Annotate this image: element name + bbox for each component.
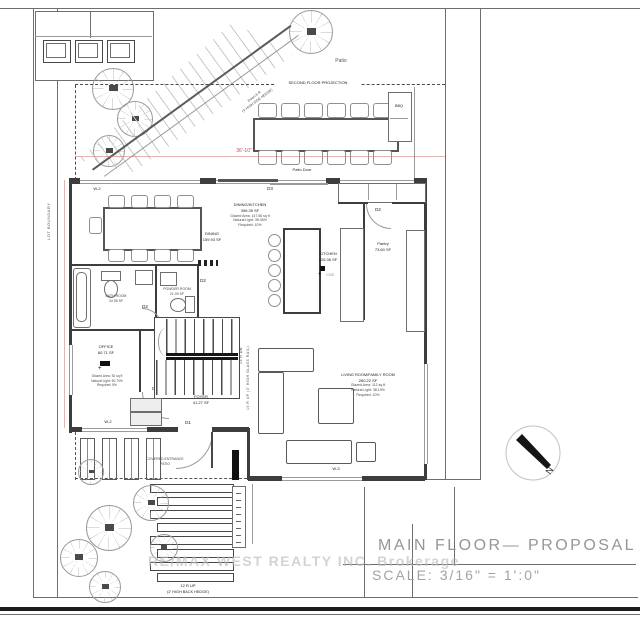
second-floor-projection-line	[75, 84, 445, 85]
wall-pier	[248, 476, 282, 481]
window-glazing	[424, 364, 425, 464]
dining-chair	[131, 195, 148, 208]
detector-icon: +	[98, 366, 102, 372]
stairs-upper-run	[166, 319, 238, 353]
toilet-tank	[185, 296, 195, 313]
sheet-scale: SCALE: 3/16" = 1':0"	[372, 567, 592, 583]
border-bottom-thick	[0, 607, 640, 611]
planter-box	[75, 40, 103, 63]
patio-dashed-left	[75, 432, 76, 480]
outdoor-chair	[350, 150, 369, 165]
dining-chair	[89, 217, 102, 234]
stairs-rail	[166, 357, 238, 360]
bbq-divider	[390, 118, 408, 119]
second-floor-projection-label: SECOND FLOOR PROJECTION	[276, 80, 360, 85]
patio-door-label: Patio Door	[282, 167, 322, 172]
strip-edge-line	[252, 484, 253, 544]
room-area: 73.60 SF	[368, 247, 398, 253]
border-bottom-thin	[0, 614, 640, 615]
pantry-shelving	[406, 230, 425, 332]
door-label-d2: D2	[138, 304, 152, 309]
window-glazing	[427, 364, 428, 464]
dining-chair	[108, 249, 125, 262]
outdoor-chair	[281, 103, 300, 118]
floor-plan-canvas: LOT BOUNDARY Down 6 R (3' HIGH SIDE HEDG…	[0, 0, 640, 620]
site-line-top	[0, 8, 640, 9]
room-required: Required: 10%	[334, 393, 402, 398]
entrance-column	[232, 450, 239, 480]
pantry-label: Pantry 73.60 SF	[368, 241, 398, 253]
site-line-right-1	[445, 8, 446, 480]
outdoor-chair	[304, 150, 323, 165]
wall-pier	[362, 476, 425, 481]
kitchen-counter-top	[338, 183, 426, 203]
window-glazing	[69, 345, 70, 395]
site-line-right-2	[480, 8, 481, 480]
room-area: 21.09 SF	[158, 292, 196, 297]
sofa-return	[258, 372, 284, 434]
tree	[289, 10, 333, 54]
lot-boundary-line	[57, 8, 58, 598]
bathtub	[73, 268, 91, 328]
second-floor-projection-line-left	[75, 85, 76, 180]
planting-strip	[232, 486, 246, 548]
outdoor-table	[253, 118, 399, 152]
outdoor-chair	[350, 103, 369, 118]
patio-label: Patio	[326, 58, 356, 64]
co-detector-icon: +	[318, 272, 322, 278]
room-area: 41.27 SF	[184, 400, 218, 406]
dining-kitchen-label: DINING/KITCHEN 396.39 SF Glazed Area: 14…	[220, 202, 280, 228]
dining-chair	[154, 249, 171, 262]
dining-chair	[177, 195, 194, 208]
foyer-label: FOYER 41.27 SF	[184, 394, 218, 406]
bbq-label: BBQ	[388, 104, 410, 108]
room-name-2: PATIO	[134, 462, 196, 467]
outdoor-chair	[304, 103, 323, 118]
window-glazing	[282, 477, 362, 478]
dimension-line-left	[64, 180, 65, 428]
site-line-left	[33, 8, 34, 598]
wall-bath-top	[70, 264, 198, 266]
island-stool	[268, 249, 281, 262]
living-label: LIVING ROOM/FAMILY ROOM 260.22 SF Glazed…	[334, 372, 402, 398]
garage-inner-line	[35, 36, 152, 37]
wall-pier	[147, 427, 178, 432]
window-label-w2: W-2	[88, 186, 106, 191]
wall-left	[69, 180, 72, 345]
covered-patio-label: COVERED ENTRANCE PATIO	[134, 457, 196, 467]
dining-chair	[177, 249, 194, 262]
watermark: RE/MAX WEST REALTY INC. Brokerage	[148, 553, 478, 569]
island-stool	[268, 264, 281, 277]
room-area: 226.36 SF	[312, 257, 344, 263]
bath-sink	[135, 270, 153, 285]
foyer-closet	[130, 412, 162, 426]
office-glazing-note: Glazed Area: 30 sq ft Natural Light: 50.…	[82, 374, 132, 388]
window-label-w2-lower: W-2	[98, 419, 118, 424]
window-label-w3: W-3	[326, 466, 346, 471]
door-label-d3: D3	[262, 186, 278, 191]
office-label: OFFICE 60.71 SF	[84, 344, 128, 356]
room-required: Required: 5%	[82, 383, 132, 388]
wall-pier	[212, 427, 249, 432]
dining-table	[103, 207, 202, 251]
exterior-step	[157, 523, 234, 532]
detector-icon	[320, 266, 325, 271]
kitchen-label: KITCHEN 226.36 SF	[312, 251, 344, 263]
window-glazing	[282, 480, 362, 481]
island-stool	[268, 234, 281, 247]
side-table	[356, 442, 376, 462]
door-label-d1: D1	[180, 420, 196, 425]
bench-sofa	[286, 440, 352, 464]
foyer-closet	[130, 398, 162, 412]
powder-label: POWDER ROOM 21.09 SF	[158, 287, 196, 297]
door-label-d2: D2	[196, 278, 210, 283]
door-label-d2: D2	[371, 207, 385, 212]
tree	[133, 485, 169, 521]
counter-divider	[396, 184, 397, 200]
patio-side-line	[414, 87, 415, 180]
counter-divider	[368, 184, 369, 200]
room-required: Required: 10%	[220, 223, 280, 228]
garage-divider	[90, 11, 91, 38]
tree	[60, 539, 98, 577]
room-area: 34.95 SF	[98, 299, 134, 304]
outdoor-chair	[327, 150, 346, 165]
outdoor-chair	[258, 103, 277, 118]
titleblock-line	[364, 487, 365, 598]
exterior-step	[157, 573, 234, 582]
entry-door-leaf	[211, 432, 213, 468]
north-arrow: N	[500, 420, 570, 490]
wall-pier	[200, 178, 216, 184]
bath-label: BATH ROOM 34.95 SF	[98, 294, 134, 304]
powder-sink	[160, 272, 177, 286]
wall-step	[247, 428, 250, 480]
kitchen-counter-side	[340, 228, 364, 322]
planter-box	[107, 40, 135, 63]
patio-door-panel	[270, 183, 328, 186]
room-area: 159.93 SF	[196, 237, 228, 243]
outdoor-chair	[327, 103, 346, 118]
dining-chair	[154, 195, 171, 208]
window-glazing	[72, 345, 73, 395]
hedge-note: (2' HIGH BACK HEDGE)	[148, 590, 228, 594]
kitchen-island	[283, 228, 321, 314]
site-line-bottom	[33, 597, 638, 598]
dining-label: DINING 159.93 SF	[196, 231, 228, 243]
room-area: 60.71 SF	[84, 350, 128, 356]
tree	[78, 459, 104, 485]
detector-label: CMD	[326, 273, 342, 277]
walkway-bottom-line	[427, 479, 480, 480]
stairs-down-label: 15 R DN	[239, 322, 243, 364]
tree	[89, 571, 121, 603]
bbq-counter	[388, 92, 412, 142]
dining-chair	[108, 195, 125, 208]
stairs-rail	[166, 353, 238, 356]
stairs-up-label: 15 R UP (3' HIGH GLASS RAIL)	[246, 332, 250, 410]
wall-pantry-top	[392, 202, 425, 204]
room-name: LIVING ROOM/FAMILY ROOM	[334, 372, 402, 378]
planter-box	[43, 40, 71, 63]
island-stool	[268, 279, 281, 292]
island-stool	[268, 294, 281, 307]
stairs-walkline	[158, 328, 173, 356]
window-glazing	[82, 428, 147, 429]
stairs-lower-run	[156, 360, 238, 395]
dining-chair	[131, 249, 148, 262]
patio-door-panel	[218, 179, 278, 182]
kitchen-appliance-row	[198, 260, 218, 266]
sofa	[258, 348, 314, 372]
wall-office-right	[139, 330, 141, 392]
dimension-line	[75, 156, 445, 157]
dimension-text: 36'-10"	[226, 148, 262, 154]
steps-label: 12 R UP	[164, 583, 212, 588]
outdoor-chair	[373, 150, 392, 165]
lot-boundary-label: LOT BOUNDARY	[46, 168, 51, 240]
outdoor-chair	[281, 150, 300, 165]
entrance-planter	[102, 438, 117, 480]
toilet-bowl	[170, 298, 186, 312]
window-glazing	[82, 431, 147, 432]
